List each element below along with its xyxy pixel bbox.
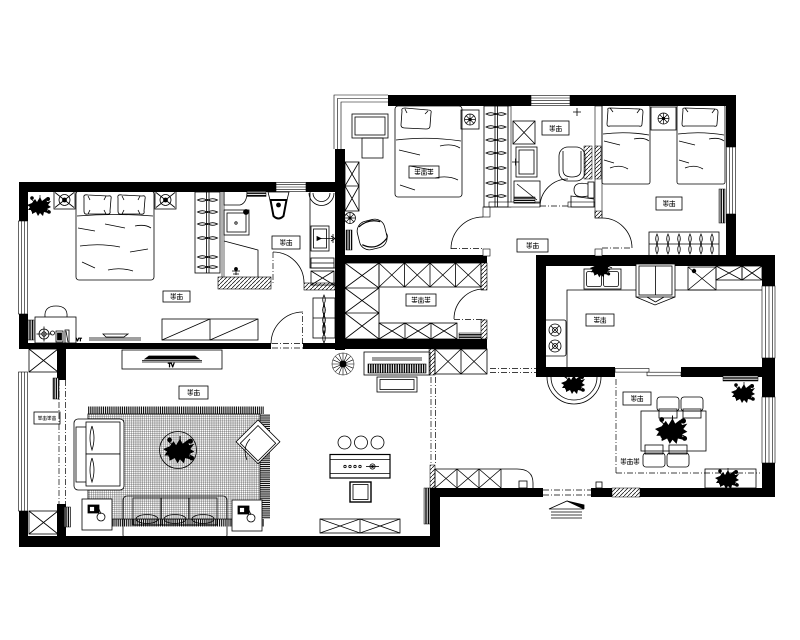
svg-text:TV: TV [168,363,175,369]
svg-text:VT: VT [76,337,82,342]
